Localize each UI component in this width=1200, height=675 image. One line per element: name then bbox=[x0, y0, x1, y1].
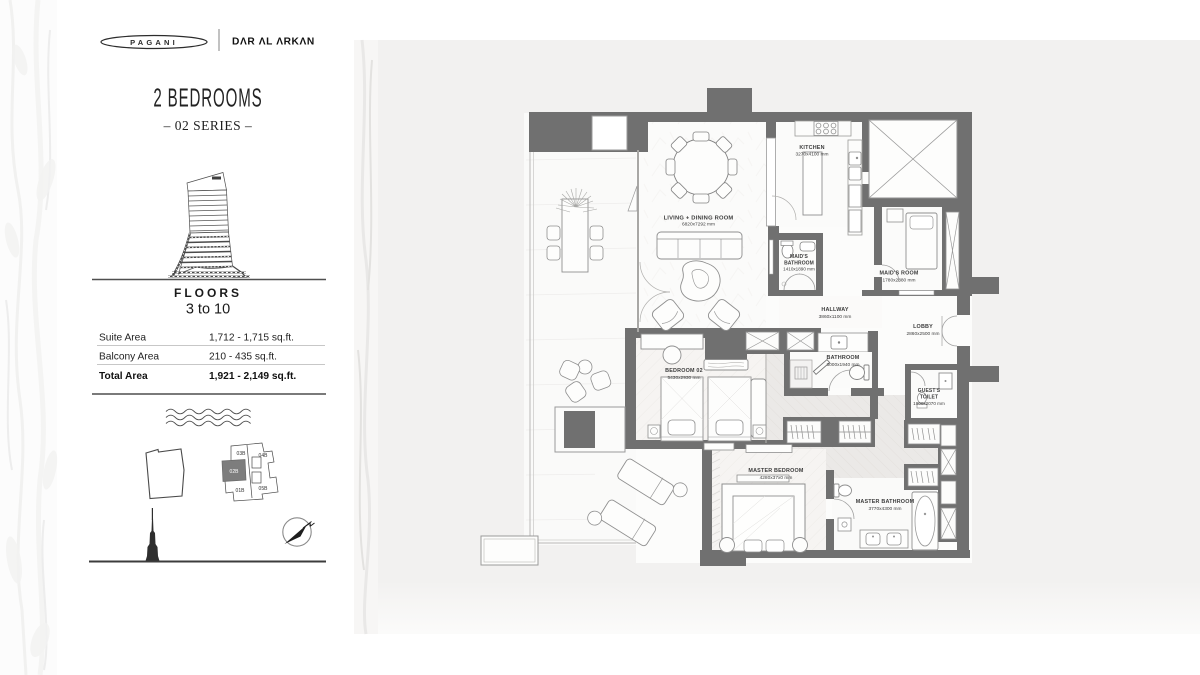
svg-text:02B: 02B bbox=[230, 469, 240, 475]
svg-text:03B: 03B bbox=[237, 451, 247, 457]
svg-text:210 - 435 sq.ft.: 210 - 435 sq.ft. bbox=[209, 352, 277, 363]
svg-text:LOBBY: LOBBY bbox=[913, 324, 933, 330]
svg-text:Total Area: Total Area bbox=[99, 371, 148, 382]
svg-text:6820x7292 mm: 6820x7292 mm bbox=[682, 221, 715, 227]
svg-text:HALLWAY: HALLWAY bbox=[821, 307, 848, 313]
svg-text:– 02 SERIES –: – 02 SERIES – bbox=[163, 118, 253, 133]
svg-text:PAGANI: PAGANI bbox=[130, 38, 178, 47]
svg-text:FLOORS: FLOORS bbox=[174, 286, 242, 300]
svg-text:Balcony Area: Balcony Area bbox=[99, 352, 159, 363]
svg-text:01B: 01B bbox=[236, 488, 246, 494]
svg-text:1900x2070 mm: 1900x2070 mm bbox=[913, 401, 945, 406]
svg-text:KITCHEN: KITCHEN bbox=[799, 145, 824, 151]
svg-text:3000x1940 mm: 3000x1940 mm bbox=[826, 362, 859, 368]
svg-text:BATHROOM: BATHROOM bbox=[827, 355, 860, 361]
svg-text:LIVING + DINING ROOM: LIVING + DINING ROOM bbox=[664, 215, 734, 221]
svg-text:MAID'S ROOM: MAID'S ROOM bbox=[879, 271, 918, 277]
svg-text:MASTER BATHROOM: MASTER BATHROOM bbox=[856, 499, 915, 505]
svg-text:1,921 - 2,149 sq.ft.: 1,921 - 2,149 sq.ft. bbox=[209, 371, 296, 382]
svg-text:3770x4300 mm: 3770x4300 mm bbox=[868, 506, 901, 512]
svg-text:1780x2880 mm: 1780x2880 mm bbox=[882, 278, 915, 284]
svg-text:3 to 10: 3 to 10 bbox=[186, 302, 230, 318]
svg-text:2860x2500 mm: 2860x2500 mm bbox=[906, 331, 939, 337]
svg-text:TOILET: TOILET bbox=[920, 395, 938, 401]
svg-text:05B: 05B bbox=[259, 486, 269, 492]
svg-text:GUEST'S: GUEST'S bbox=[918, 388, 941, 394]
svg-text:1,712 - 1,715 sq.ft.: 1,712 - 1,715 sq.ft. bbox=[209, 333, 294, 344]
svg-text:MAID'S: MAID'S bbox=[790, 254, 808, 260]
svg-text:4280x37x0 mm: 4280x37x0 mm bbox=[760, 475, 793, 481]
svg-text:2 BEDROOMS: 2 BEDROOMS bbox=[153, 83, 262, 112]
svg-text:Suite Area: Suite Area bbox=[99, 333, 146, 344]
svg-text:1410x1890 mm: 1410x1890 mm bbox=[783, 267, 815, 272]
svg-text:3270x4100 mm: 3270x4100 mm bbox=[795, 152, 828, 158]
svg-text:3860x1100 mm: 3860x1100 mm bbox=[819, 314, 852, 320]
svg-text:BEDROOM 02: BEDROOM 02 bbox=[665, 368, 703, 374]
svg-text:DΛR ΛL ΛRKΛN: DΛR ΛL ΛRKΛN bbox=[232, 37, 315, 48]
svg-text:04B: 04B bbox=[259, 453, 269, 459]
svg-text:5430x2930 mm: 5430x2930 mm bbox=[667, 375, 700, 381]
svg-text:MASTER BEDROOM: MASTER BEDROOM bbox=[748, 468, 804, 474]
